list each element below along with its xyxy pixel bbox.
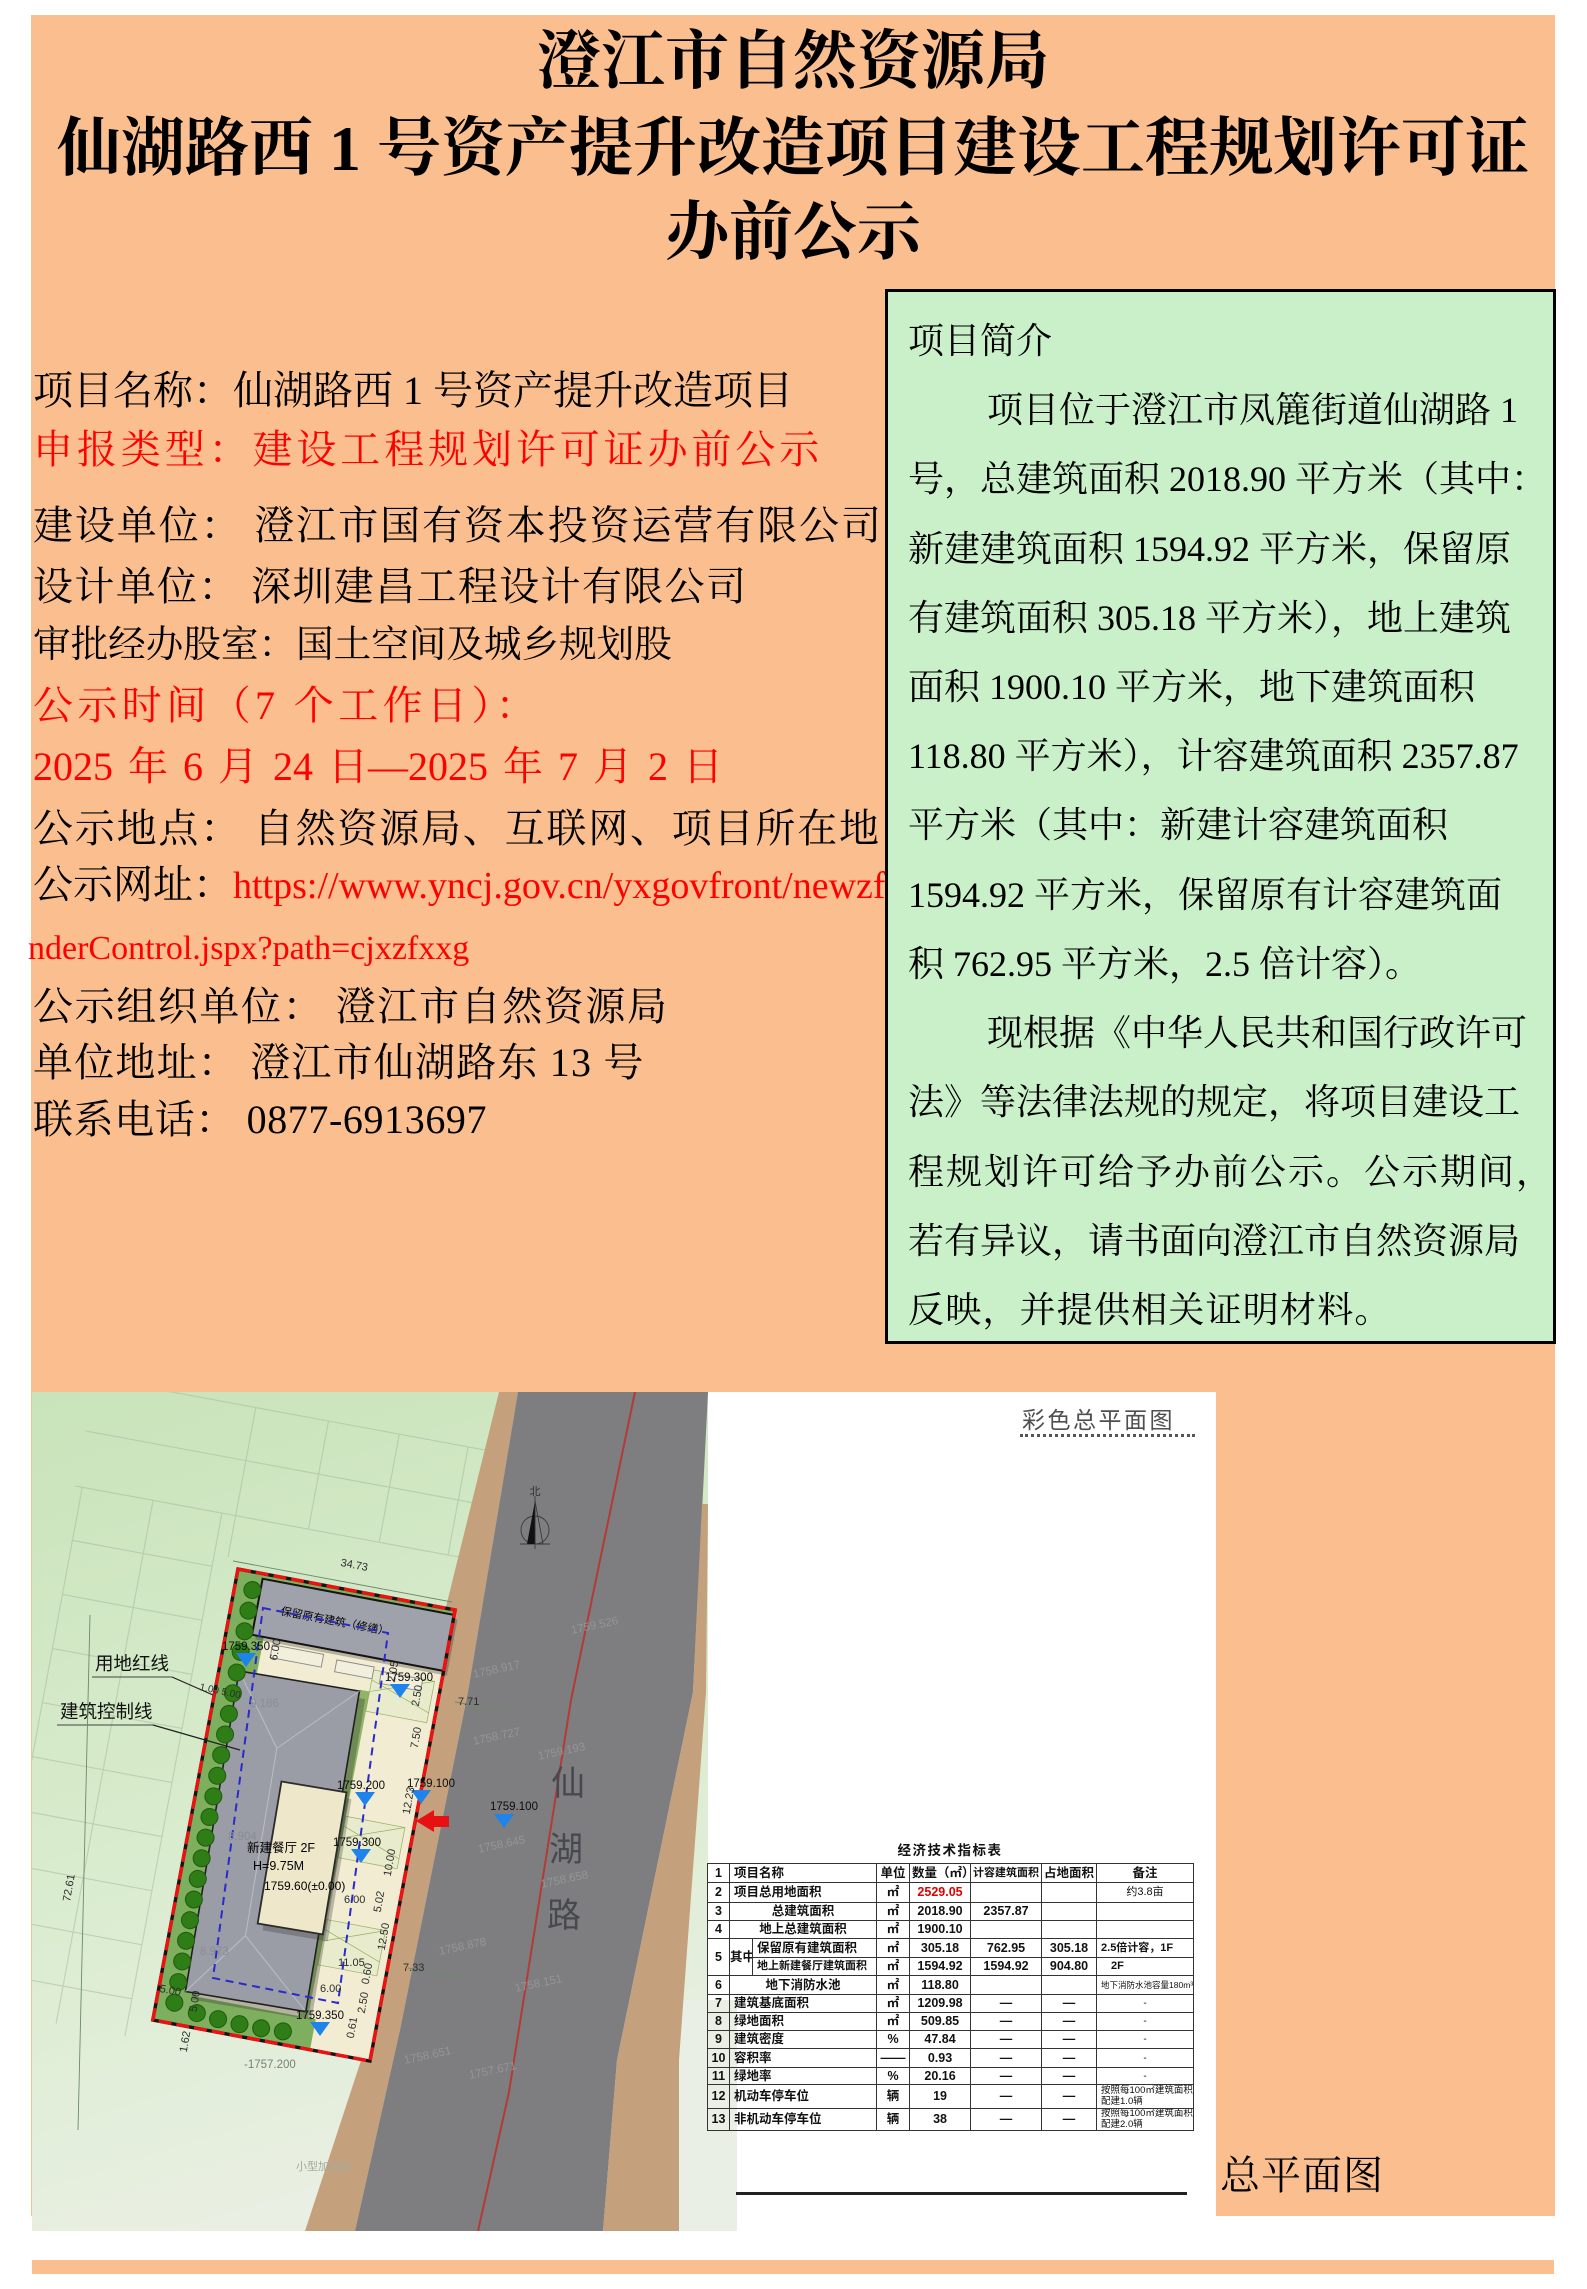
svg-text:7.33: 7.33 — [403, 1962, 424, 1974]
svg-text:1759.200: 1759.200 — [337, 1780, 385, 1792]
svg-text:1759.350: 1759.350 — [222, 1641, 270, 1653]
svg-text:H=9.75M: H=9.75M — [253, 1859, 304, 1873]
svg-text:1759.100: 1759.100 — [490, 1801, 538, 1813]
svg-text:小型加油站: 小型加油站 — [296, 2159, 351, 2173]
svg-text:-1757.200: -1757.200 — [244, 2059, 296, 2071]
svg-text:仙: 仙 — [551, 1765, 585, 1803]
svg-text:1759.60(±0.00): 1759.60(±0.00) — [264, 1879, 345, 1893]
svg-text:建筑控制线: 建筑控制线 — [60, 1701, 153, 1722]
svg-text:1759.350: 1759.350 — [296, 2010, 344, 2022]
svg-text:8.973: 8.973 — [200, 1946, 229, 1958]
svg-text:11.05: 11.05 — [338, 1957, 365, 1969]
svg-text:用地红线: 用地红线 — [95, 1653, 169, 1674]
svg-text:新建餐厅 2F: 新建餐厅 2F — [247, 1840, 315, 1855]
svg-text:6.00: 6.00 — [320, 1983, 341, 1995]
svg-text:路: 路 — [547, 1897, 581, 1935]
svg-text:北: 北 — [530, 1485, 541, 1498]
svg-text:6.00: 6.00 — [344, 1894, 365, 1906]
svg-text:7.71: 7.71 — [458, 1696, 479, 1708]
svg-text:1759.300: 1759.300 — [333, 1837, 381, 1849]
svg-text:9.186: 9.186 — [250, 1698, 279, 1710]
svg-text:8.904: 8.904 — [228, 1831, 257, 1843]
svg-text:湖: 湖 — [549, 1831, 583, 1869]
